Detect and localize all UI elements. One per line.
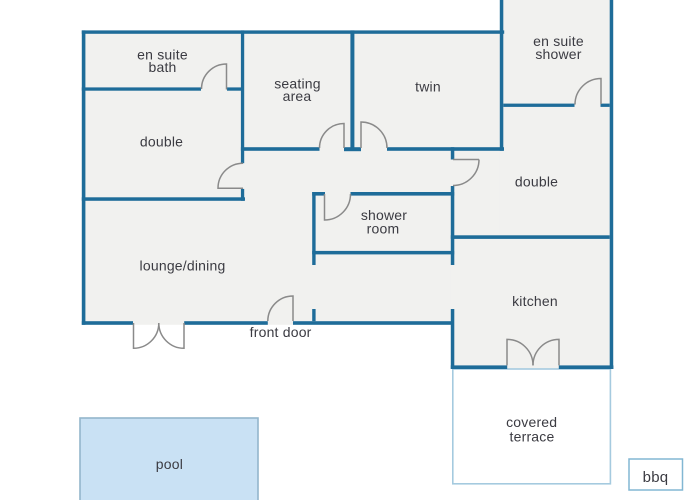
svg-text:front door: front door [250,324,312,340]
svg-text:bath: bath [148,59,176,75]
svg-text:kitchen: kitchen [512,293,558,309]
svg-text:bbq: bbq [643,469,669,486]
svg-text:double: double [140,134,183,150]
svg-text:area: area [283,88,312,104]
svg-text:twin: twin [415,79,441,95]
svg-text:room: room [367,221,400,237]
svg-text:shower: shower [535,46,581,62]
svg-text:double: double [515,174,558,190]
svg-text:terrace: terrace [510,429,555,445]
svg-text:pool: pool [156,456,183,472]
svg-text:lounge/dining: lounge/dining [140,258,226,274]
